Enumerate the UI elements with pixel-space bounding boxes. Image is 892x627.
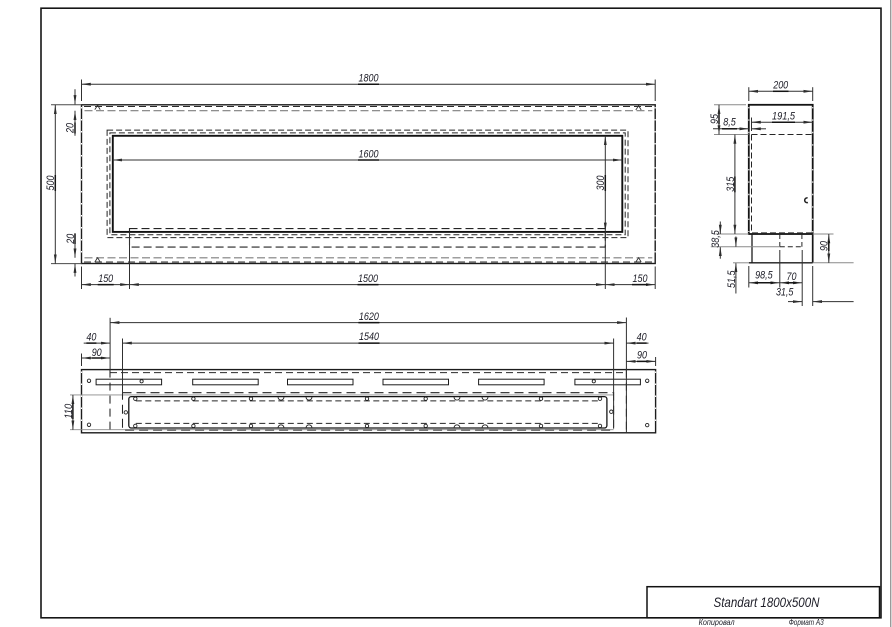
svg-text:Standart 1800x500N: Standart 1800x500N bbox=[714, 594, 821, 610]
svg-text:51,5: 51,5 bbox=[726, 270, 738, 288]
svg-text:98,5: 98,5 bbox=[755, 270, 773, 282]
svg-text:1800: 1800 bbox=[359, 73, 380, 85]
svg-text:31,5: 31,5 bbox=[776, 287, 794, 299]
svg-text:150: 150 bbox=[98, 273, 114, 285]
svg-text:Копировал: Копировал bbox=[699, 618, 735, 627]
svg-text:38,5: 38,5 bbox=[710, 230, 722, 248]
svg-text:Формат А3: Формат А3 bbox=[789, 618, 824, 627]
svg-text:1620: 1620 bbox=[359, 311, 380, 323]
svg-text:1540: 1540 bbox=[359, 331, 380, 343]
svg-text:90: 90 bbox=[637, 350, 648, 362]
svg-text:200: 200 bbox=[772, 80, 789, 92]
svg-text:191,5: 191,5 bbox=[772, 110, 796, 122]
svg-text:40: 40 bbox=[86, 331, 97, 343]
svg-text:1600: 1600 bbox=[359, 149, 380, 161]
svg-text:1500: 1500 bbox=[358, 273, 379, 285]
svg-text:40: 40 bbox=[637, 331, 648, 343]
svg-text:8,5: 8,5 bbox=[723, 117, 736, 129]
svg-text:150: 150 bbox=[633, 273, 649, 285]
svg-text:70: 70 bbox=[787, 271, 798, 283]
svg-text:90: 90 bbox=[92, 347, 103, 359]
